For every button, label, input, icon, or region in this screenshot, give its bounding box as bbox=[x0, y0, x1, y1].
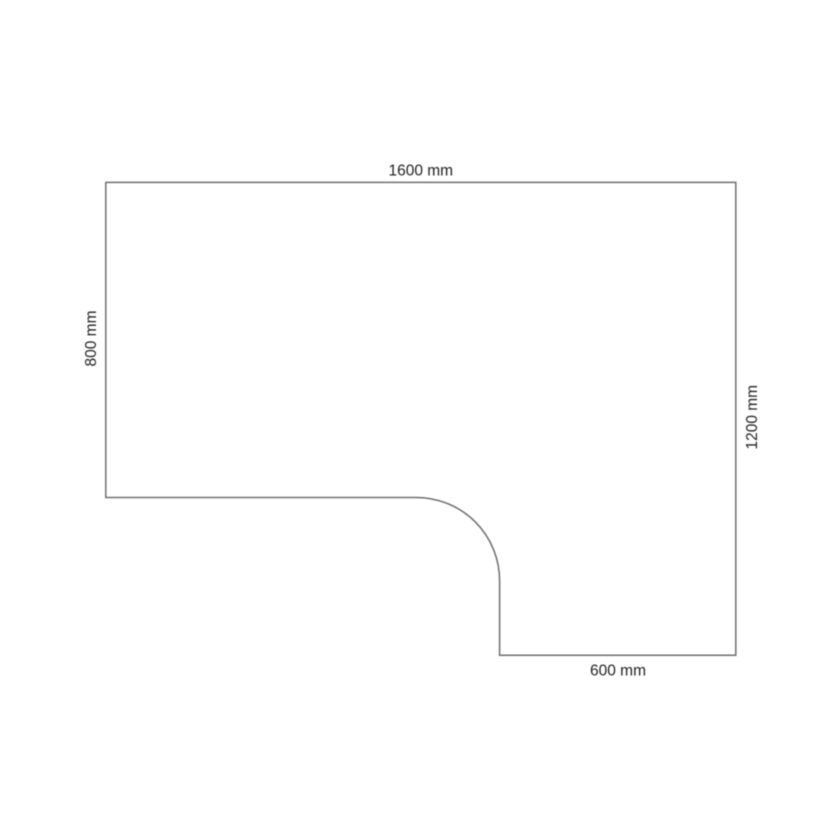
svg-text:1200 mm: 1200 mm bbox=[744, 385, 761, 450]
svg-text:800 mm: 800 mm bbox=[83, 311, 100, 367]
svg-text:1600 mm: 1600 mm bbox=[388, 162, 453, 179]
svg-text:600 mm: 600 mm bbox=[590, 662, 646, 679]
